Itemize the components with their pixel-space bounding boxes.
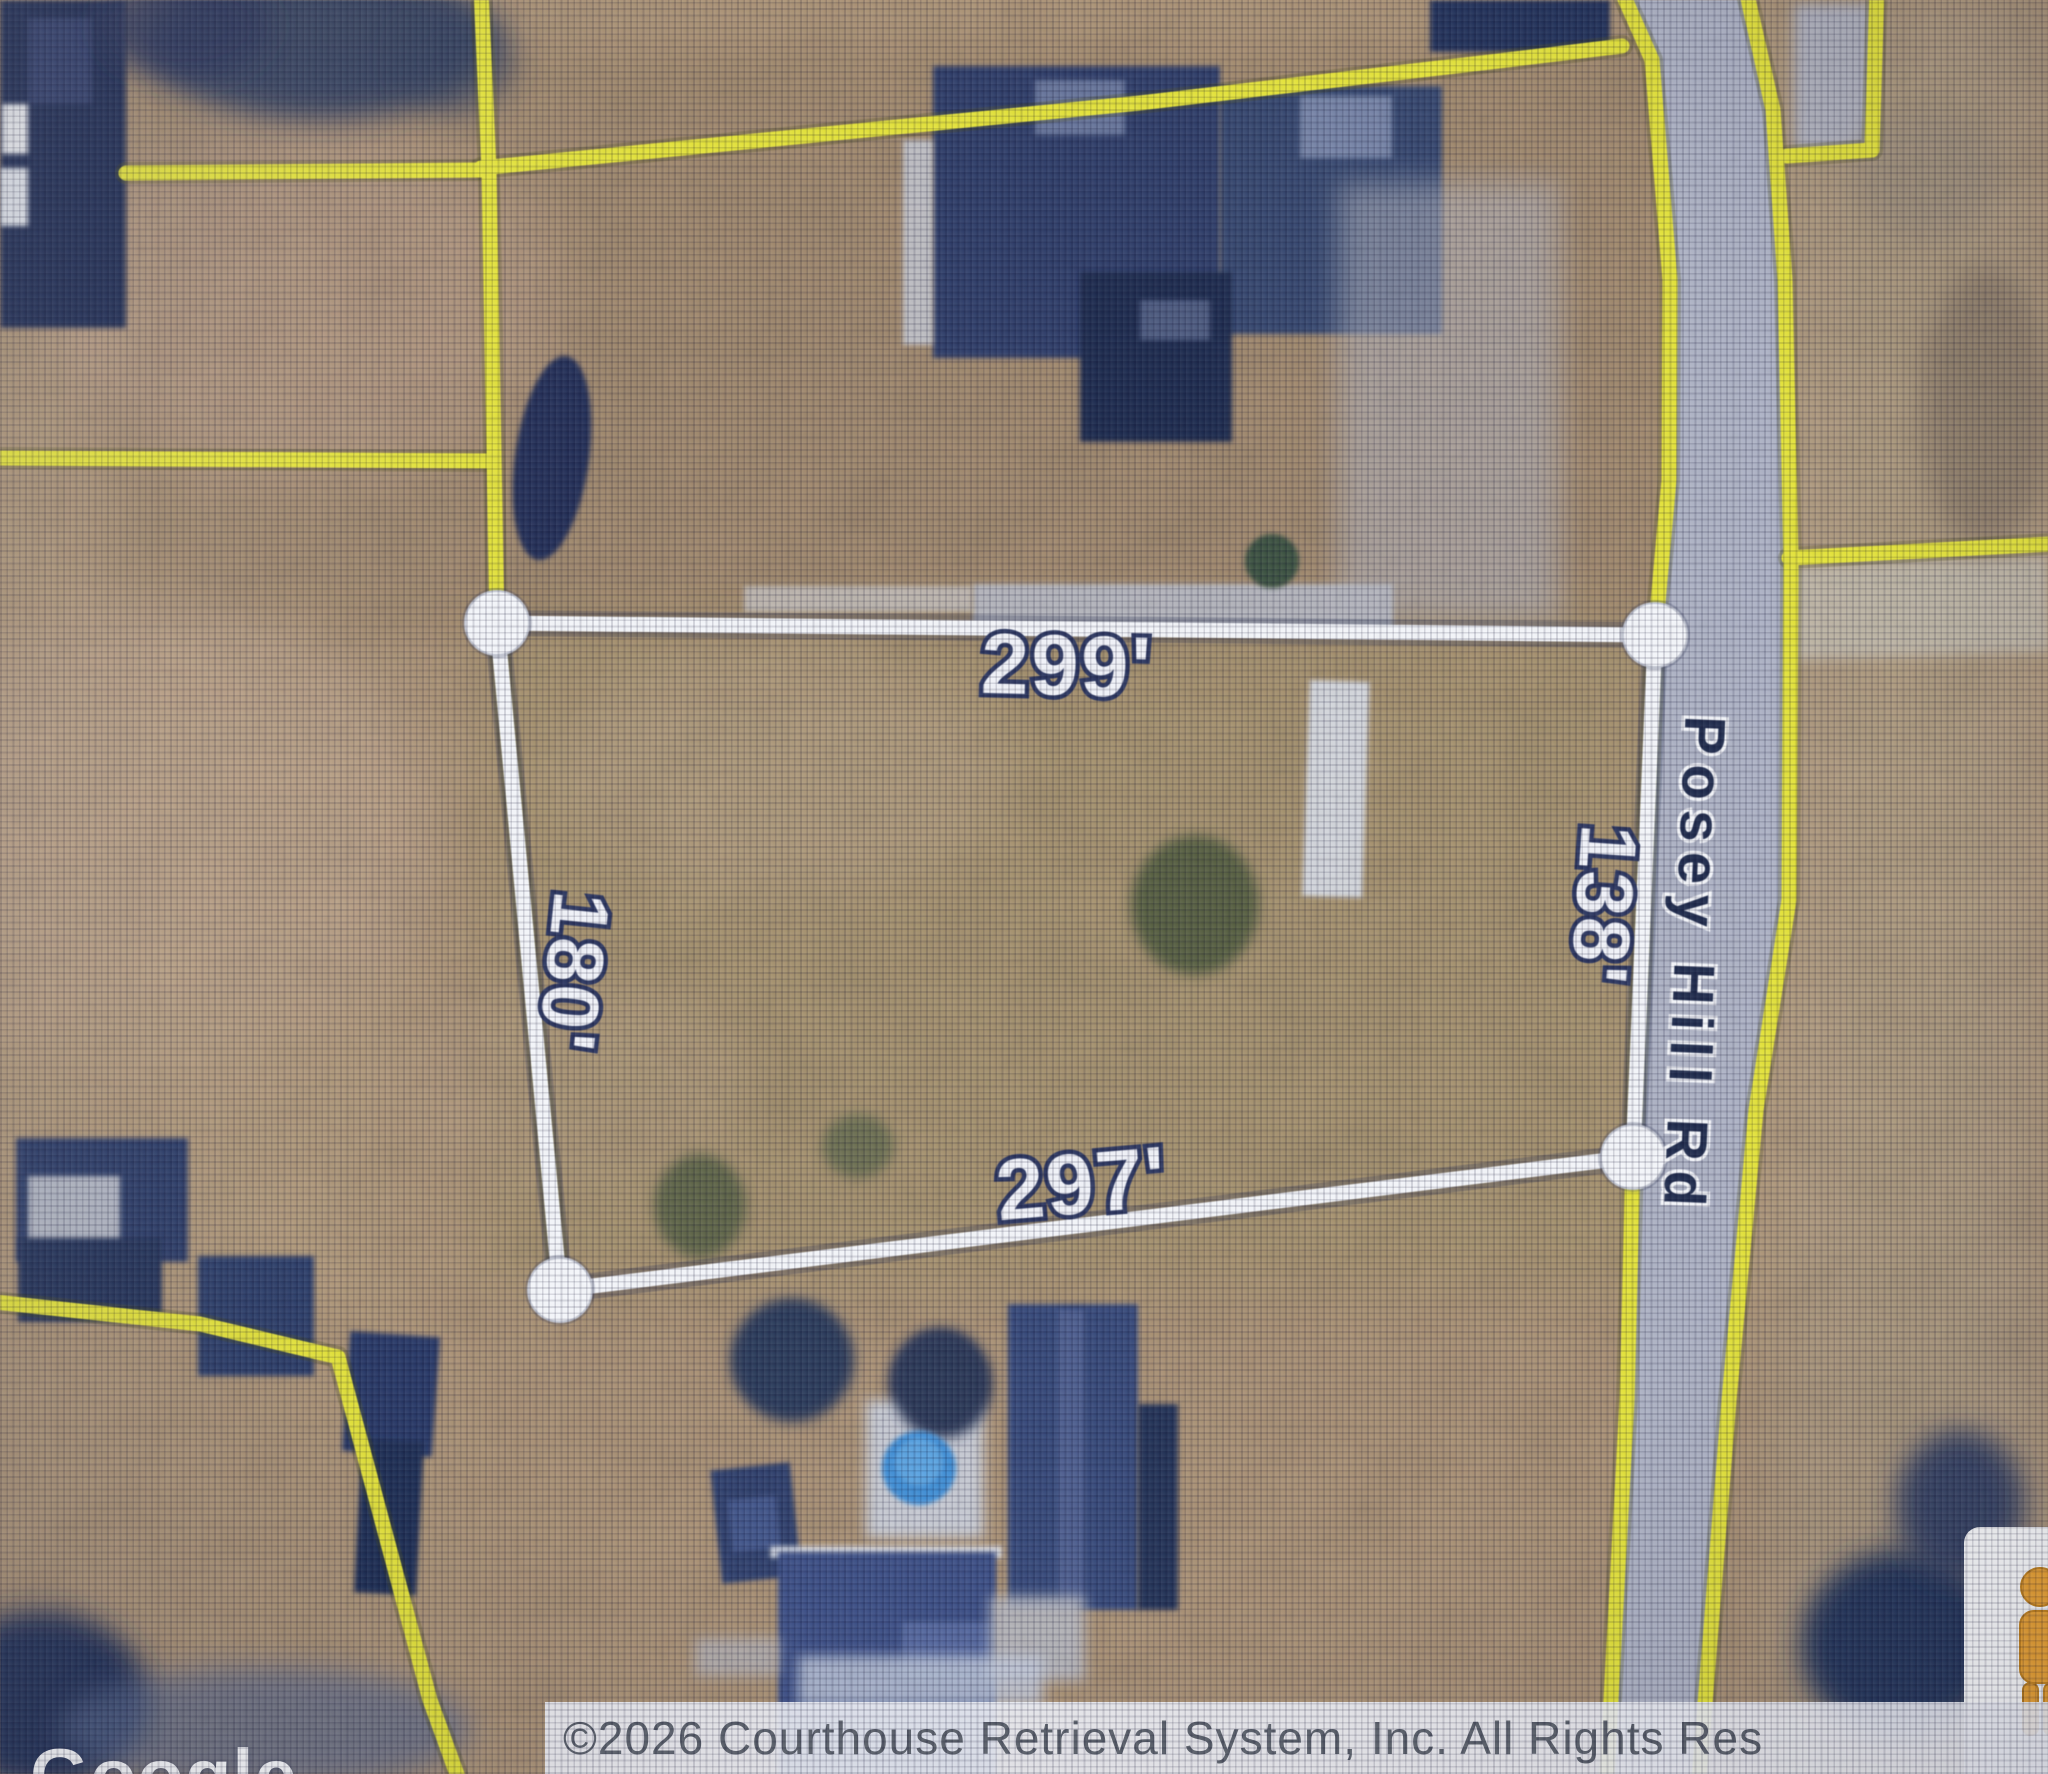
- attribution-text: ©2026 Courthouse Retrieval System, Inc. …: [545, 1711, 1763, 1765]
- aerial-map-canvas[interactable]: 299' 180' 297' 138' Posey Hill Rd ©2026 …: [0, 0, 2048, 1774]
- map-imagery: 299' 180' 297' 138' Posey Hill Rd: [0, 0, 2048, 1774]
- attribution-bar: ©2026 Courthouse Retrieval System, Inc. …: [545, 1702, 2048, 1774]
- google-watermark[interactable]: Google: [30, 1733, 298, 1774]
